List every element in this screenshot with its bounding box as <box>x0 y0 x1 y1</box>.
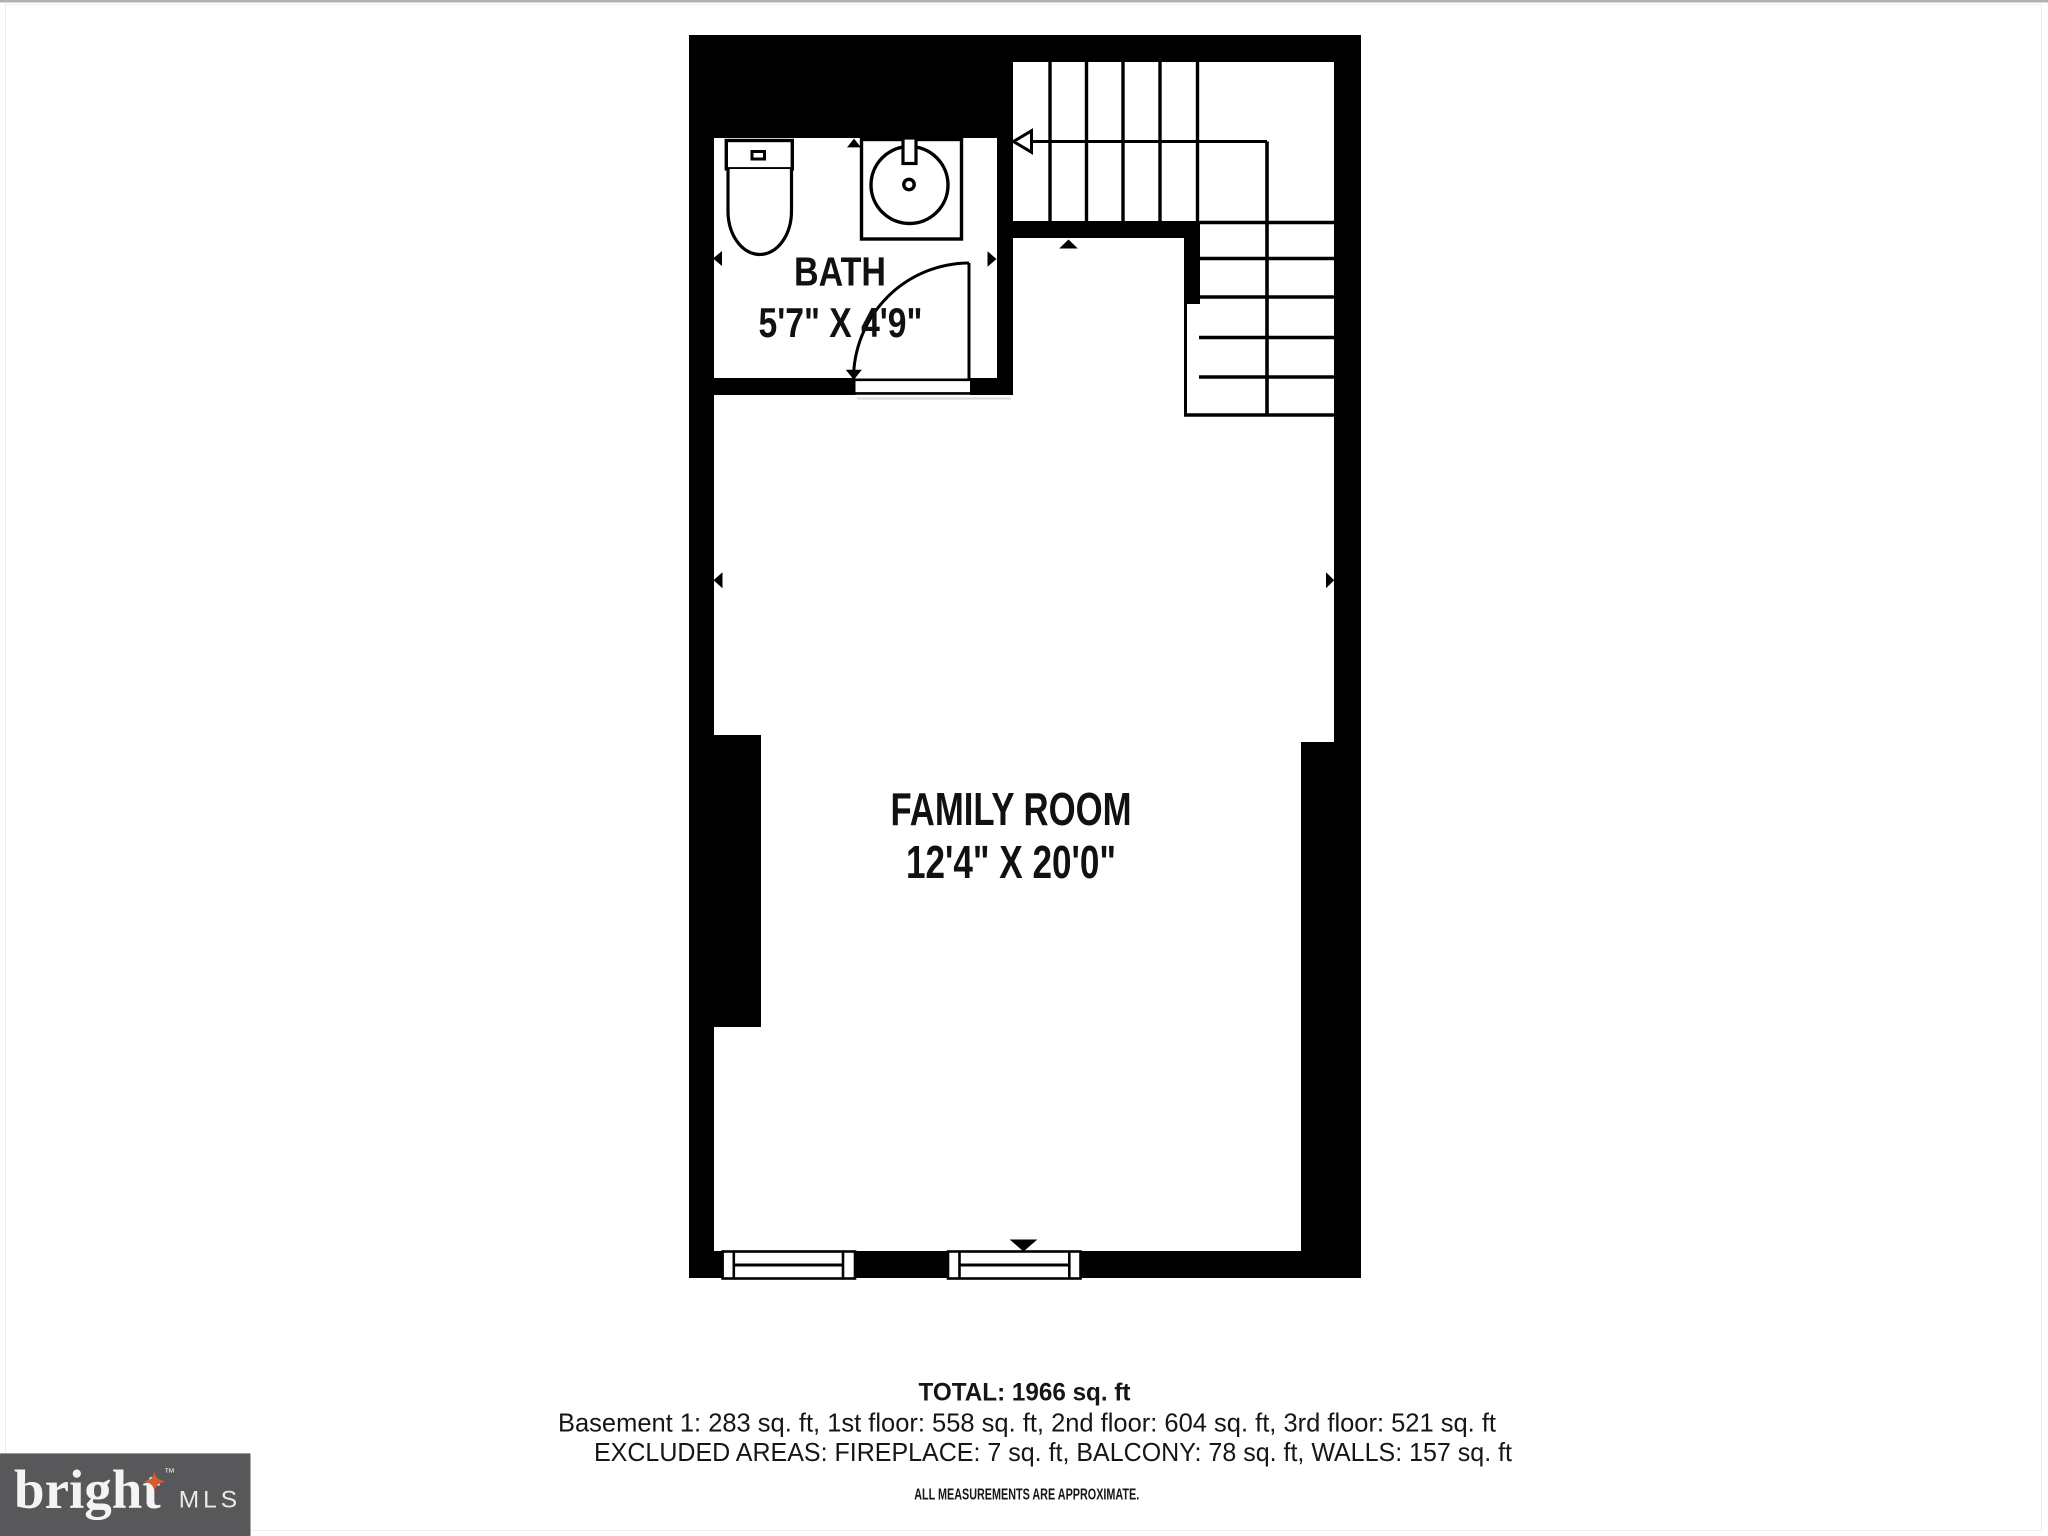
svg-text:Basement 1: 283 sq. ft, 1st fl: Basement 1: 283 sq. ft, 1st floor: 558 s… <box>558 1407 1497 1437</box>
svg-text:12'4" X 20'0": 12'4" X 20'0" <box>906 836 1116 888</box>
svg-text:5'7" X 4'9": 5'7" X 4'9" <box>759 299 923 346</box>
svg-text:MLS: MLS <box>179 1487 241 1514</box>
svg-text:FAMILY ROOM: FAMILY ROOM <box>891 783 1132 835</box>
svg-text:EXCLUDED AREAS: FIREPLACE: 7 s: EXCLUDED AREAS: FIREPLACE: 7 sq. ft, BAL… <box>594 1437 1513 1467</box>
svg-text:TOTAL: 1966 sq. ft: TOTAL: 1966 sq. ft <box>919 1379 1132 1407</box>
svg-text:ALL MEASUREMENTS ARE APPROXIMA: ALL MEASUREMENTS ARE APPROXIMATE. <box>914 1487 1139 1504</box>
svg-text:™: ™ <box>164 1467 175 1479</box>
svg-text:bright: bright <box>14 1459 161 1520</box>
svg-text:BATH: BATH <box>794 248 886 294</box>
